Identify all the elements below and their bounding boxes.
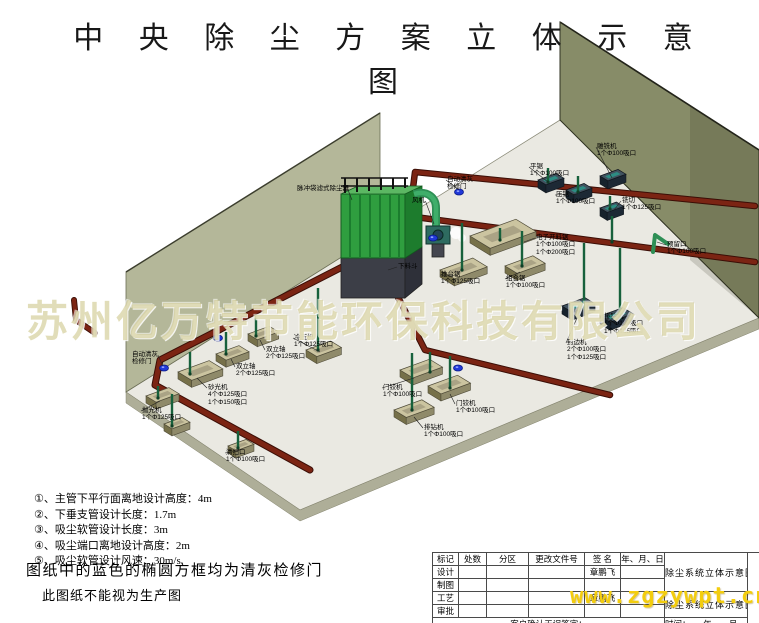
note-line: ③、吸尘软管设计长度：3m [34, 523, 212, 539]
url-watermark: www.zgzywpt.cn [570, 584, 759, 609]
note-warning: 此图纸不能视为生产图 [42, 585, 182, 604]
suction-nozzle [188, 372, 191, 375]
tb-sign-design: 章鹏飞 [585, 566, 621, 579]
tb-row-approve: 审批 [433, 605, 459, 618]
access-door-oval [214, 335, 223, 341]
suction-nozzle [448, 386, 451, 389]
access-door-highlight [457, 190, 460, 192]
note-line: ②、下垂支管设计长度：1.7m [34, 508, 212, 524]
note-line: ①、主管下平行面离地设计高度：4m [34, 492, 212, 508]
fan-stand [432, 244, 444, 257]
drawing-sheet: 脉冲袋滤式除尘器风机自动清灰检修门下料斗平锯1个Φ100吸口压锯1个Φ100吸口… [0, 0, 759, 623]
tb-header-zone: 分区 [487, 553, 529, 566]
tb-customer-sign: 客户确认无误签字： [433, 618, 665, 623]
tb-cell [621, 566, 665, 579]
tb-cell [487, 592, 529, 605]
suction-nozzle [170, 424, 173, 427]
suction-nozzle [254, 334, 257, 337]
access-door-highlight [431, 236, 434, 238]
tb-row-draft: 制图 [433, 579, 459, 592]
tb-row-design: 设计 [433, 566, 459, 579]
access-door-oval [429, 235, 438, 241]
suction-nozzle [428, 370, 431, 373]
suction-nozzle [410, 408, 413, 411]
tb-time-1: 时间： 年 月 日 [665, 618, 748, 623]
tb-cell [487, 605, 529, 618]
access-door-highlight [162, 366, 165, 368]
suction-nozzle [498, 238, 501, 241]
tb-cell [529, 566, 585, 579]
note-blue-doors: 图纸中的蓝色的椭圆方框均为清灰检修门 [26, 559, 323, 580]
tb-cell [487, 566, 529, 579]
suction-nozzle [610, 240, 613, 243]
tb-header-changefile: 更改文件号 [529, 553, 585, 566]
suction-nozzle [224, 352, 227, 355]
tb-header-date: 年、月、日 [621, 553, 665, 566]
tb-row-process: 工艺 [433, 592, 459, 605]
suction-nozzle [582, 306, 585, 309]
access-door-highlight [456, 366, 459, 368]
suction-nozzle [608, 207, 611, 210]
access-door-highlight [216, 336, 219, 338]
design-notes: ①、主管下平行面离地设计高度：4m ②、下垂支管设计长度：1.7m ③、吸尘软管… [34, 492, 212, 570]
suction-nozzle [618, 316, 621, 319]
tb-cell [487, 579, 529, 592]
page-title: 中 央 除 尘 方 案 立 体 示 意 图 [60, 13, 720, 101]
suction-nozzle [156, 396, 159, 399]
suction-nozzle [236, 446, 239, 449]
suction-nozzle [520, 264, 523, 267]
tb-cell [459, 605, 487, 618]
suction-nozzle [460, 268, 463, 271]
tb-header-mark: 标记 [433, 553, 459, 566]
suction-nozzle [576, 190, 579, 193]
tb-cell [459, 579, 487, 592]
collector-base [341, 258, 405, 298]
access-door-oval [454, 365, 463, 371]
tb-cell [459, 592, 487, 605]
note-line: ④、吸尘端口离地设计高度：2m [34, 539, 212, 555]
tb-header-signature: 签 名 [585, 553, 621, 566]
tb-cell [459, 566, 487, 579]
access-door-oval [160, 365, 169, 371]
tb-header-count: 处数 [459, 553, 487, 566]
